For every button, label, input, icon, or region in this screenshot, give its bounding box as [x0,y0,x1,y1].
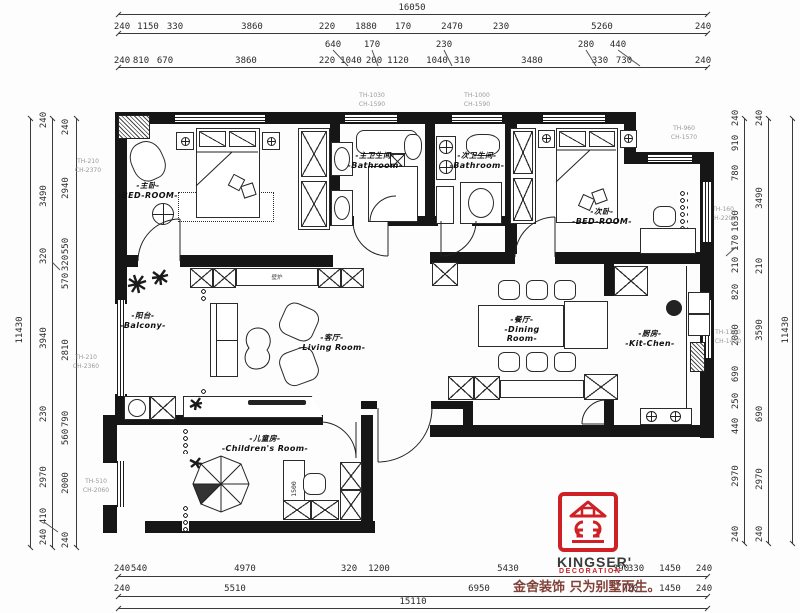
bed-fold-lines [196,152,258,186]
door-arc-entry [378,408,432,462]
room-en: -Living Room- [294,343,370,352]
room-cn: -主卧- [112,180,184,191]
room-cn: -主卫生间- [344,150,406,161]
room-en: -BED-ROOM- [562,217,642,226]
room-label-balcony: -阳台- -Balcony- [110,310,176,330]
door-arc-bath2 [441,221,476,256]
room-label-kitchen: -厨房- -Kit-Chen- [614,328,686,348]
brand-tagline: 金舍装饰 只为别墅而生。 [513,576,661,595]
coffee-table-icon [245,328,270,369]
room-en: -Bathroom- [344,161,406,170]
door-arc-bedroom2 [515,217,555,257]
room-label-master-bath: -主卫生间- -Bathroom- [344,150,406,170]
plant-icon [128,275,146,293]
door-arc-master [138,219,180,261]
room-label-second-bath: -次卫生间- -Bathroom- [446,150,508,170]
room-en: -Dining Room- [490,325,554,343]
plan-curves-overlay [0,0,800,613]
room-cn: -厨房- [614,328,686,339]
room-cn: -儿童房- [205,433,325,444]
door-arc-shower [370,196,396,222]
room-en: -Children's Room- [205,444,325,453]
door-arc-kitchen [582,400,606,424]
plant-icon [152,270,168,285]
callout-leader [333,50,640,66]
room-cn: -次卫生间- [446,150,508,161]
room-en: -BED-ROOM- [112,191,184,200]
room-cn: -客厅- [294,332,370,343]
door-arc-children [320,422,356,458]
room-label-dining: -餐厅- -Dining Room- [490,314,554,343]
room-en: -Balcony- [110,321,176,330]
plant-icon [190,398,202,410]
room-cn: -阳台- [110,310,176,321]
room-en: -Kit-Chen- [614,339,686,348]
room-en: -Bathroom- [446,161,508,170]
umbrella-icon [193,456,249,512]
callout-leader [44,247,736,532]
room-cn: -餐厅- [490,314,554,325]
door-arc-bath1 [353,221,388,256]
kingser-logo-icon [558,492,618,554]
room-label-children: -儿童房- -Children's Room- [205,433,325,453]
room-label-second-bedroom: -次卧- -BED-ROOM- [562,206,642,226]
brand-sub: DECORATION [559,568,622,575]
room-cn: -次卧- [562,206,642,217]
room-label-master-bedroom: -主卧- -BED-ROOM- [112,180,184,200]
room-label-living: -客厅- -Living Room- [294,332,370,352]
bed-fold-lines [556,150,616,182]
floor-plan-canvas: 1605024011503303860220188017024702305260… [0,0,800,613]
